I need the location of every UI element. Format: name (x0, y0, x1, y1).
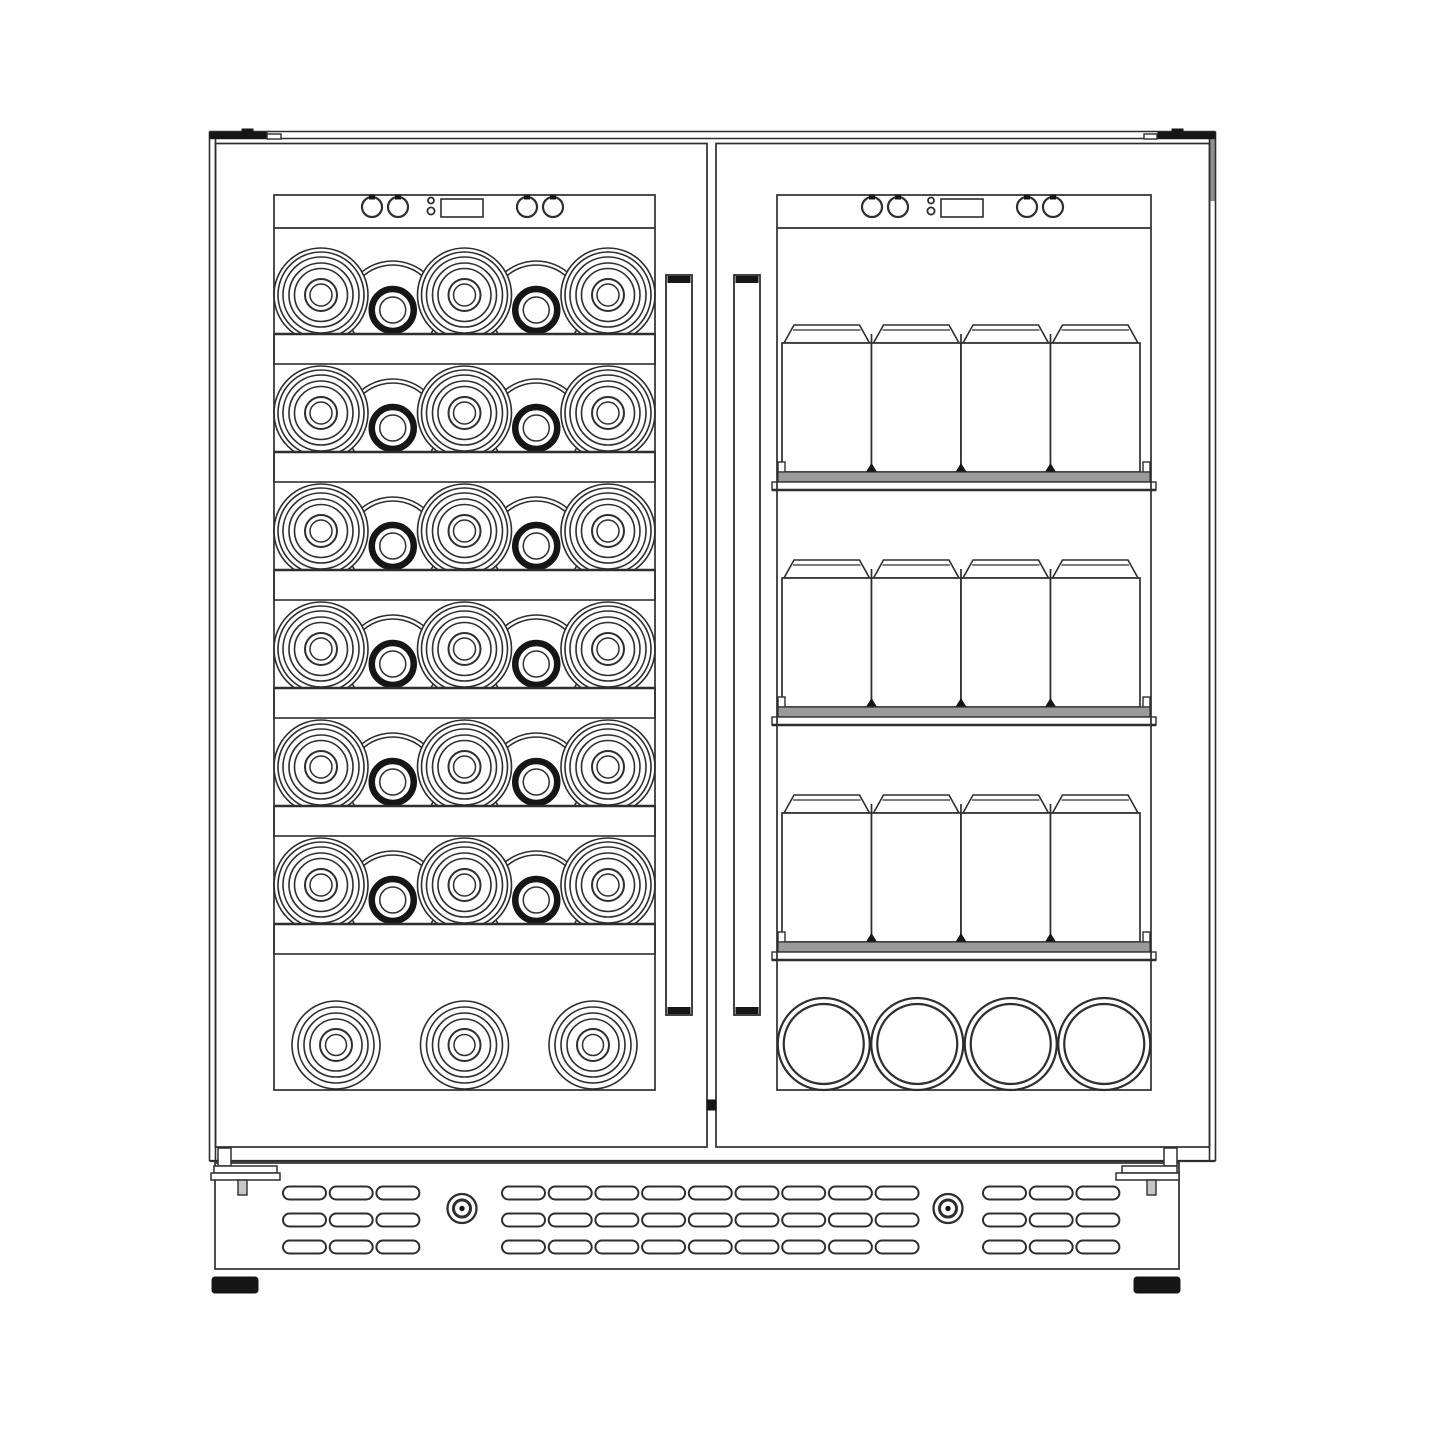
beverage-can (961, 343, 1051, 472)
shelf-end-clip (778, 462, 785, 472)
button-notch (550, 195, 556, 200)
right-door-handle (734, 275, 760, 1015)
foot (212, 1277, 258, 1293)
can-lid (874, 795, 960, 813)
button-notch (369, 195, 375, 200)
wine-bottle (274, 484, 368, 578)
vent-slot (642, 1214, 685, 1227)
beverage-can (872, 578, 962, 707)
vent-slot (283, 1214, 326, 1227)
vent-slot (983, 1187, 1026, 1200)
large-wine-bottle (292, 1001, 380, 1089)
left-door-handle (666, 275, 692, 1015)
vent-slot (876, 1187, 919, 1200)
beverage-can (961, 813, 1051, 942)
wine-bottle (274, 838, 368, 932)
can-lid (784, 560, 870, 578)
wine-bottle (418, 366, 512, 460)
beverage-can (1051, 813, 1141, 942)
can-lid (874, 325, 960, 343)
can-lid (1053, 325, 1139, 343)
button-notch (524, 195, 530, 200)
handle-top-cap (736, 276, 759, 283)
bracket-plate (1116, 1173, 1179, 1180)
foot-pad (212, 1277, 258, 1293)
beverage-can (961, 578, 1051, 707)
button-notch (1050, 195, 1056, 200)
wine-bottle (274, 720, 368, 814)
wine-shelf (274, 570, 655, 600)
wine-shelf (274, 334, 655, 364)
vent-slot (876, 1241, 919, 1254)
wine-beverage-cooler-diagram (0, 0, 1445, 1445)
vent-slot (829, 1241, 872, 1254)
wine-shelf (274, 688, 655, 718)
vent-slot (376, 1187, 419, 1200)
right-edge-shade (1210, 139, 1216, 202)
bracket-upright (1164, 1148, 1177, 1166)
shelf-end-clip (1143, 697, 1150, 707)
bracket-plate (1122, 1166, 1177, 1173)
wine-shelf (274, 924, 655, 954)
shelf-end-clip (1143, 462, 1150, 472)
vent-slot (876, 1214, 919, 1227)
beverage-can (782, 578, 872, 707)
handle-bottom-cap (668, 1007, 691, 1014)
left-hinge-tab (242, 129, 253, 133)
vent-slot (595, 1241, 638, 1254)
vent-slot (983, 1214, 1026, 1227)
wine-bottle (561, 838, 655, 932)
leveling-pin (238, 1180, 247, 1195)
left-hinge-notch (267, 134, 281, 139)
vent-slot (1076, 1214, 1119, 1227)
shelf-end-clip (778, 697, 785, 707)
vent-slot (983, 1241, 1026, 1254)
lying-can (778, 998, 870, 1090)
vent-slot (736, 1187, 779, 1200)
vent-slot (782, 1187, 825, 1200)
right-handle-bar (734, 275, 760, 1015)
wine-bottle (418, 484, 512, 578)
vent-slot (502, 1241, 545, 1254)
wine-bottle (418, 602, 512, 696)
wine-shelf (274, 806, 655, 836)
bracket-plate (211, 1173, 280, 1180)
can-lid (963, 795, 1049, 813)
wine-shelf-row (274, 838, 655, 954)
vent-grille (283, 1187, 1119, 1254)
vent-slot (782, 1214, 825, 1227)
vent-slot (642, 1187, 685, 1200)
wine-shelf-row (274, 366, 655, 482)
vent-slot (1030, 1187, 1073, 1200)
vent-slot (330, 1214, 373, 1227)
can-shelf (778, 707, 1150, 717)
can-lid (1053, 795, 1139, 813)
vent-slot (549, 1241, 592, 1254)
vent-slot (1030, 1241, 1073, 1254)
vent-slot (330, 1241, 373, 1254)
center-latch (707, 1100, 716, 1110)
can-shelf-row (772, 325, 1156, 490)
can-shelf-row (772, 795, 1156, 960)
vent-slot (330, 1187, 373, 1200)
vent-slot (376, 1241, 419, 1254)
vent-slot (1076, 1187, 1119, 1200)
can-lid (963, 560, 1049, 578)
door-gap (707, 1100, 716, 1110)
lying-can (1058, 998, 1150, 1090)
can-lid (784, 795, 870, 813)
can-lid (963, 325, 1049, 343)
vent-slot (642, 1241, 685, 1254)
beverage-can (782, 813, 872, 942)
vent-slot (595, 1187, 638, 1200)
large-wine-bottle (421, 1001, 509, 1089)
can-shelf-row (772, 560, 1156, 725)
wine-shelf (274, 452, 655, 482)
beverage-can (872, 343, 962, 472)
wine-bottle (274, 366, 368, 460)
can-lid (1053, 560, 1139, 578)
vent-slot (549, 1187, 592, 1200)
vent-slot (689, 1241, 732, 1254)
foot (1134, 1277, 1180, 1293)
right-hinge-notch (1144, 134, 1157, 139)
can-shelf (778, 942, 1150, 952)
button-notch (395, 195, 401, 200)
vent-slot (689, 1214, 732, 1227)
beverage-can (782, 343, 872, 472)
wine-shelf-row (274, 602, 655, 718)
lying-can (965, 998, 1057, 1090)
vent-slot (736, 1241, 779, 1254)
wine-bottle (561, 602, 655, 696)
vent-slot (736, 1214, 779, 1227)
vent-slot (829, 1187, 872, 1200)
can-lid (784, 325, 870, 343)
vent-slot (502, 1187, 545, 1200)
wine-bottle (418, 248, 512, 342)
foot-pad (1134, 1277, 1180, 1293)
button-notch (895, 195, 901, 200)
vent-slot (689, 1187, 732, 1200)
vent-slot (595, 1214, 638, 1227)
handle-top-cap (668, 276, 691, 283)
beverage-can (872, 813, 962, 942)
handle-bottom-cap (736, 1007, 759, 1014)
right-hinge-tab (1172, 129, 1183, 133)
lying-can (871, 998, 963, 1090)
wine-bottle (418, 720, 512, 814)
 (459, 1206, 464, 1211)
vent-slot (502, 1214, 545, 1227)
vent-slot (283, 1187, 326, 1200)
right-hinge-bar (1158, 133, 1215, 139)
bracket-plate (214, 1166, 277, 1173)
wine-bottle (418, 838, 512, 932)
button-notch (1024, 195, 1030, 200)
vent-slot (283, 1241, 326, 1254)
bracket-upright (218, 1148, 231, 1166)
shelf-end-clip (778, 932, 785, 942)
wine-bottle (561, 366, 655, 460)
wine-bottle (561, 484, 655, 578)
vent-slot (376, 1214, 419, 1227)
left-handle-bar (666, 275, 692, 1015)
wine-bottle (561, 248, 655, 342)
wine-shelf-row (274, 484, 655, 600)
diagram-canvas (0, 0, 1445, 1445)
left-hinge-bar (210, 133, 267, 139)
beverage-can (1051, 343, 1141, 472)
vent-slot (829, 1214, 872, 1227)
 (945, 1206, 950, 1211)
vent-slot (1076, 1241, 1119, 1254)
vent-slot (782, 1241, 825, 1254)
wine-bottle (274, 602, 368, 696)
wine-bottom-row (292, 1001, 637, 1089)
wine-bottle (274, 248, 368, 342)
button-notch (869, 195, 875, 200)
wine-bottle (561, 720, 655, 814)
wine-shelf-row (274, 248, 655, 364)
wine-shelf-row (274, 720, 655, 836)
shelf-end-clip (1143, 932, 1150, 942)
can-shelf (778, 472, 1150, 482)
can-lid (874, 560, 960, 578)
leveling-pin (1147, 1180, 1156, 1195)
large-wine-bottle (549, 1001, 637, 1089)
beverage-can (1051, 578, 1141, 707)
vent-slot (549, 1214, 592, 1227)
vent-slot (1030, 1214, 1073, 1227)
